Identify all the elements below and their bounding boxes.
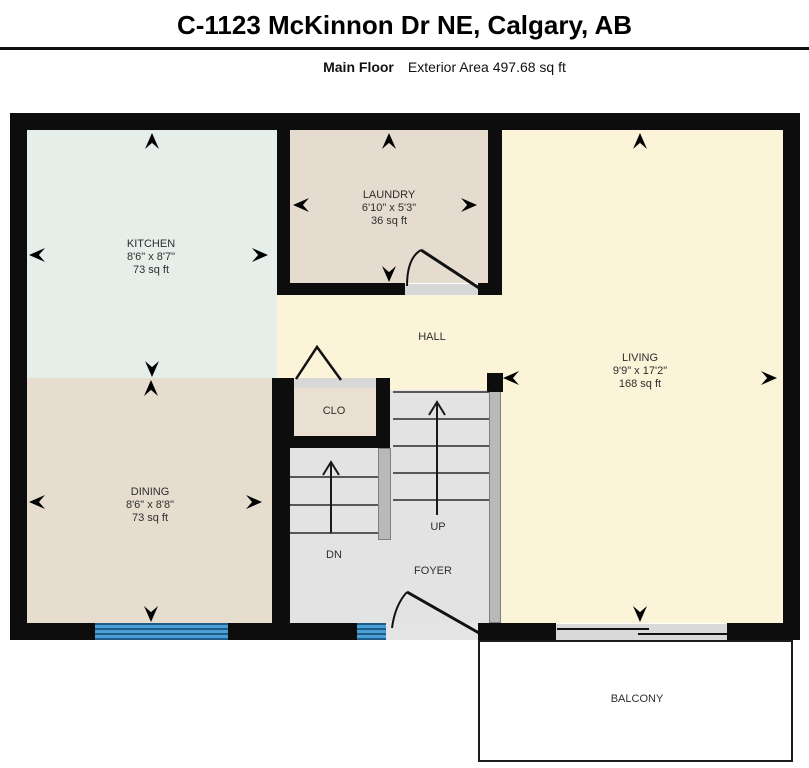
kitchen-label: KITCHEN 8'6" x 8'7" 73 sq ft: [127, 238, 175, 277]
laundry-name: LAUNDRY: [362, 189, 416, 202]
kitchen-area: 73 sq ft: [127, 264, 175, 277]
dining-area: 73 sq ft: [126, 512, 174, 525]
page-title: C-1123 McKinnon Dr NE, Calgary, AB: [0, 10, 809, 41]
laundry-label: LAUNDRY 6'10" x 5'3" 36 sq ft: [362, 189, 416, 228]
outer-wall-left: [10, 113, 27, 640]
dining-foyer-wall: [272, 378, 290, 623]
stair-rail-down: [378, 448, 391, 540]
exterior-area-label: Exterior Area 497.68 sq ft: [408, 59, 566, 75]
stair-rail-up: [489, 391, 501, 623]
kitchen-dims: 8'6" x 8'7": [127, 251, 175, 264]
living-name: LIVING: [613, 352, 667, 365]
outer-wall-bottom-seg2: [228, 623, 357, 640]
living-label: LIVING 9'9" x 17'2" 168 sq ft: [613, 352, 667, 391]
laundry-bottom-wall-left: [277, 283, 405, 295]
outer-wall-bottom-seg3: [478, 623, 556, 640]
dining-name: DINING: [126, 486, 174, 499]
dining-dims: 8'6" x 8'8": [126, 499, 174, 512]
kitchen-name: KITCHEN: [127, 238, 175, 251]
laundry-door-threshold: [405, 284, 478, 295]
balcony-label: BALCONY: [611, 693, 664, 706]
foyer-window: [357, 623, 386, 640]
rail-newel-post: [487, 373, 503, 392]
floor-label: Main Floor: [323, 59, 394, 75]
outer-wall-top: [10, 113, 800, 130]
stairs-down-label: DN: [326, 549, 342, 562]
kitchen-laundry-wall: [277, 130, 290, 295]
plan-subtitle: Main FloorExterior Area 497.68 sq ft: [40, 59, 809, 75]
laundry-bottom-wall-right: [478, 283, 502, 295]
outer-wall-bottom-seg1: [10, 623, 95, 640]
entry-door-opening: [386, 623, 478, 640]
hall-label: HALL: [418, 331, 446, 344]
outer-wall-bottom-seg4: [727, 623, 800, 640]
sliding-door-track: [556, 624, 727, 640]
dining-window: [95, 623, 228, 640]
living-dims: 9'9" x 17'2": [613, 365, 667, 378]
laundry-living-wall: [488, 130, 502, 295]
header-divider: [0, 47, 809, 50]
dining-label: DINING 8'6" x 8'8" 73 sq ft: [126, 486, 174, 525]
outer-wall-right: [783, 113, 800, 640]
living-area: 168 sq ft: [613, 378, 667, 391]
stairs-up-label: UP: [430, 521, 445, 534]
closet-door-threshold: [294, 378, 376, 388]
closet-label: CLO: [323, 405, 346, 418]
foyer-label: FOYER: [414, 565, 452, 578]
laundry-dims: 6'10" x 5'3": [362, 202, 416, 215]
laundry-area: 36 sq ft: [362, 215, 416, 228]
closet-wall-bottom: [280, 436, 390, 448]
floor-plan-page: C-1123 McKinnon Dr NE, Calgary, AB Main …: [0, 0, 809, 768]
